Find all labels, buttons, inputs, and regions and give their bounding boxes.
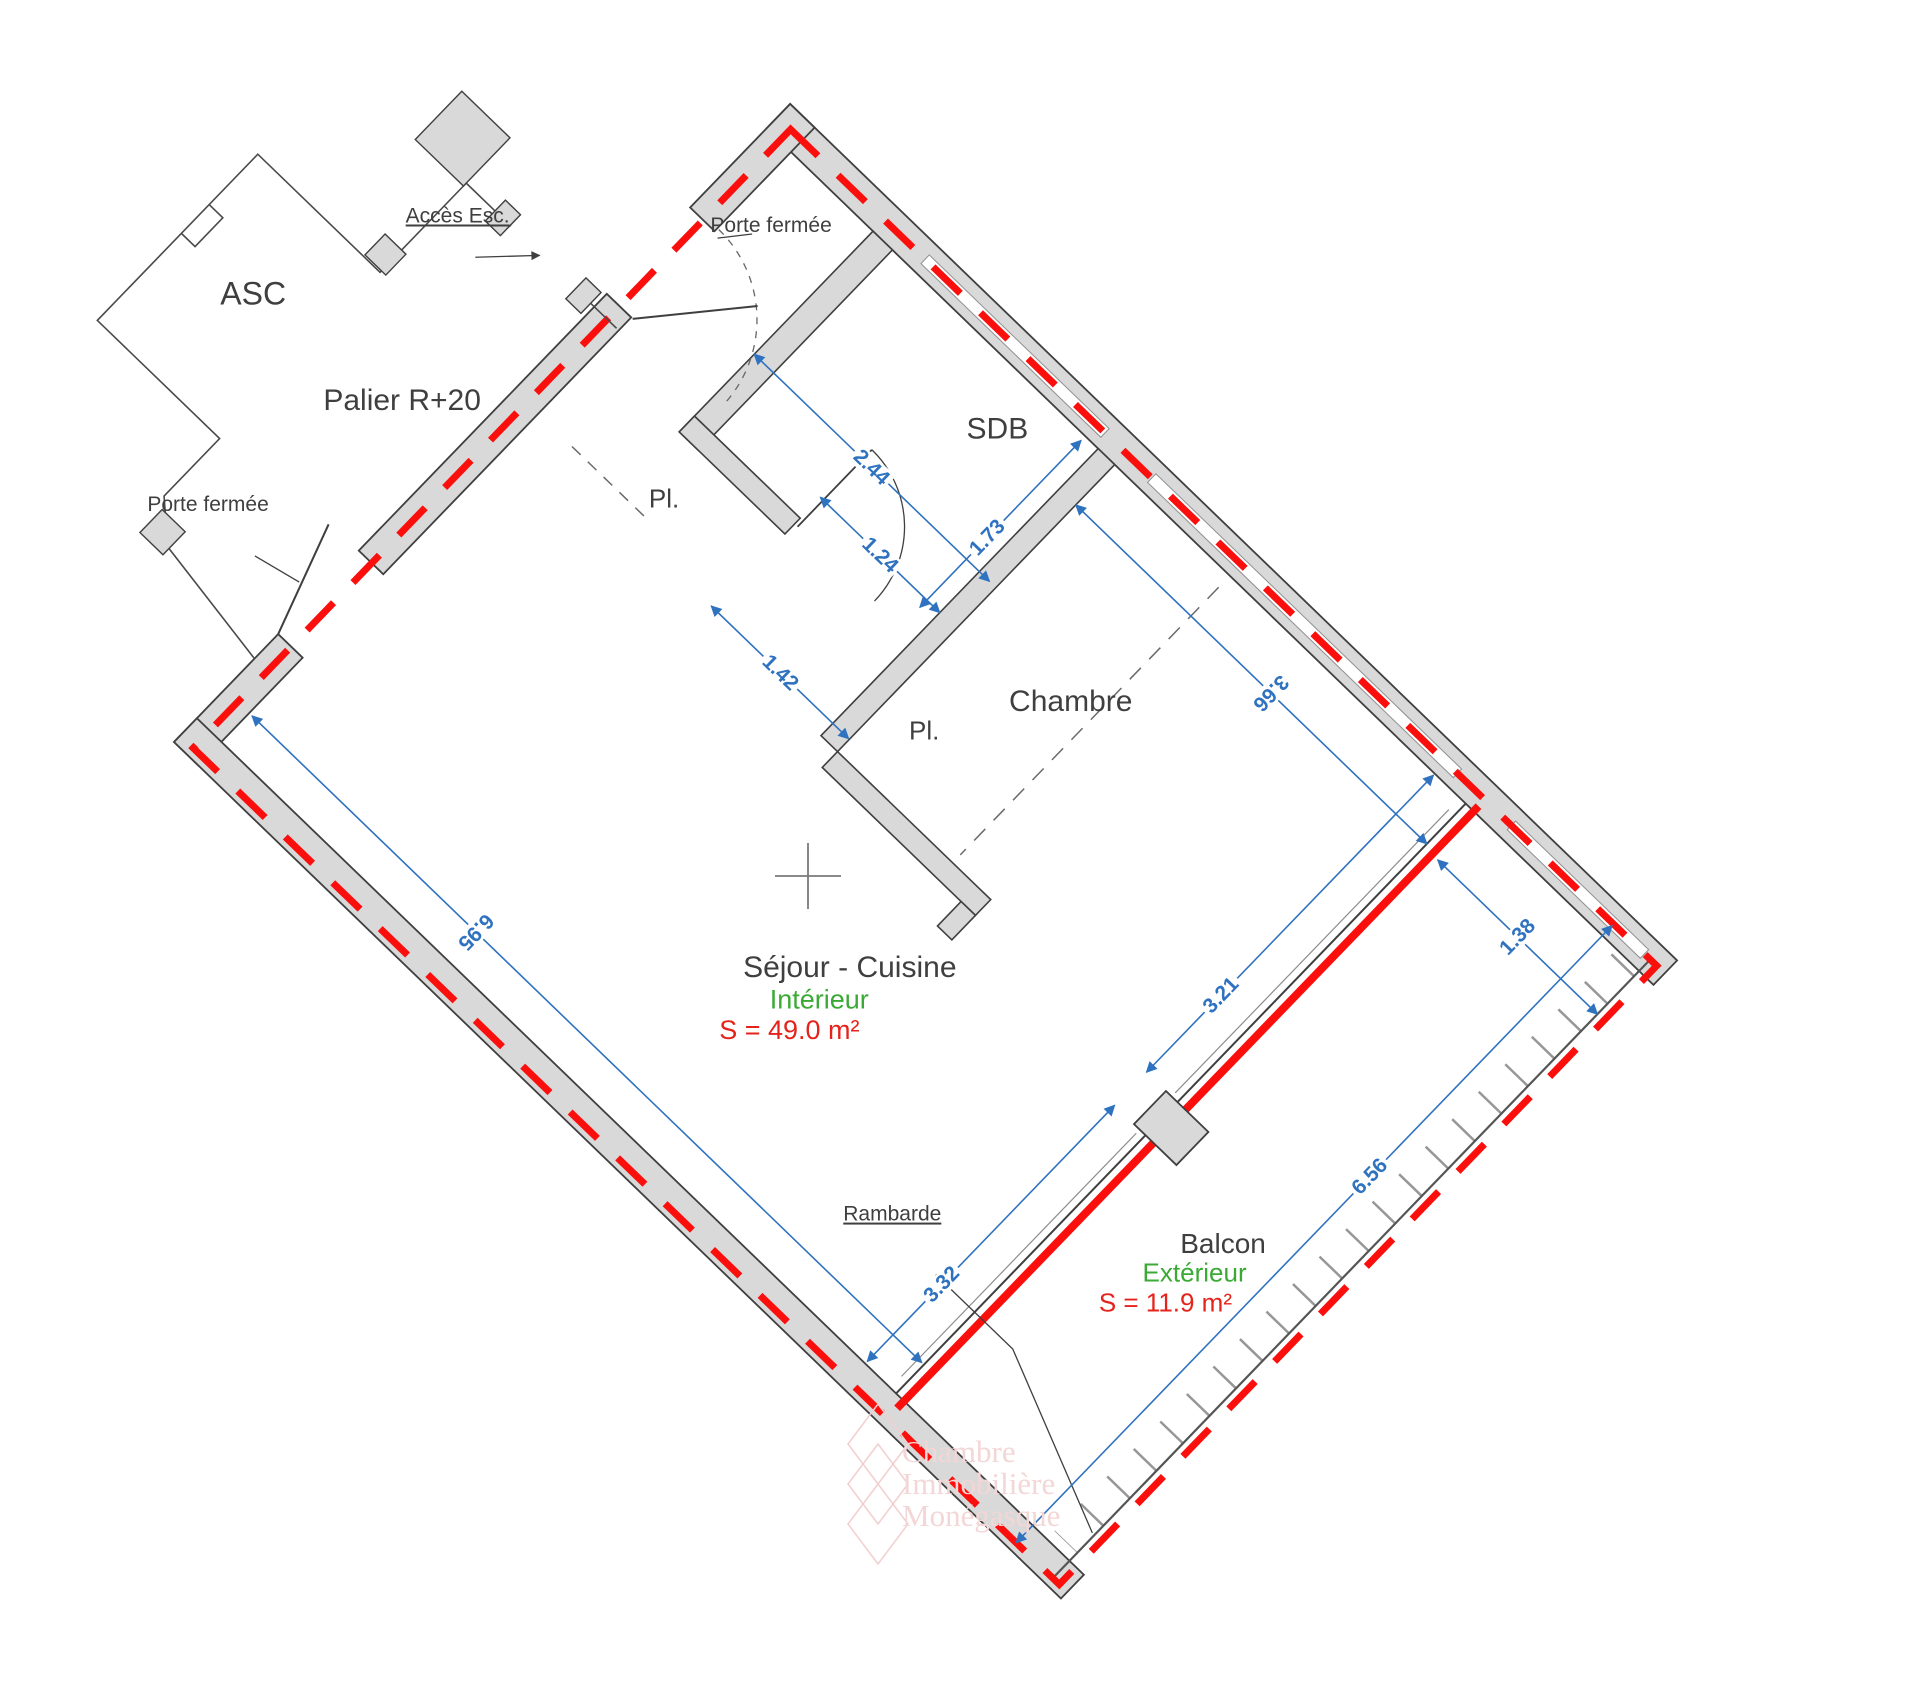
room-label-pl-chambre: Pl. bbox=[909, 717, 939, 744]
railing-hatch bbox=[1066, 964, 1624, 1542]
leader-lines bbox=[136, 107, 1578, 1533]
closet-chambre-dash bbox=[960, 587, 1218, 855]
rambarde-label: Rambarde bbox=[843, 1204, 941, 1226]
closet-hall-dash bbox=[572, 446, 649, 520]
palier-door-leaf bbox=[249, 524, 357, 634]
surface-exterieur-label: S = 11.9 m² bbox=[1099, 1290, 1232, 1317]
wall-chambre-bottom bbox=[822, 752, 991, 916]
floor-plan-drawing bbox=[0, 0, 1753, 1682]
leader-acces-esc bbox=[475, 224, 539, 288]
room-label-sejour: Séjour - Cuisine bbox=[743, 952, 956, 983]
interieur-label: Intérieur bbox=[770, 985, 869, 1013]
dim-line-balcon-length bbox=[1016, 926, 1612, 1543]
palier-label: Palier R+20 bbox=[323, 385, 481, 417]
wall-nw-seg1 bbox=[690, 104, 814, 231]
palier-asc-wall bbox=[4, 65, 593, 658]
palier-outline bbox=[4, 65, 616, 680]
porte-fermee-top-label: Porte fermée bbox=[710, 215, 831, 237]
porte-fermee-left-label: Porte fermée bbox=[147, 494, 268, 516]
facade-glazing-upper bbox=[1175, 810, 1449, 1093]
exterieur-label: Extérieur bbox=[1143, 1259, 1247, 1286]
leader-porte-left bbox=[255, 547, 299, 590]
facade-glazing-lower bbox=[901, 1133, 1136, 1376]
balcony-railing bbox=[1041, 948, 1650, 1578]
surface-interieur-label: S = 49.0 m² bbox=[719, 1016, 859, 1044]
acces-esc-label: Accès Esc. bbox=[406, 205, 510, 227]
floor-plan: Accès Esc. Porte fermée Porte fermée ASC… bbox=[0, 0, 1753, 1682]
wall-sw bbox=[174, 718, 1084, 1598]
dim-line-facade-lower bbox=[867, 1105, 1114, 1361]
floor-plan-page: Accès Esc. Porte fermée Porte fermée ASC… bbox=[0, 0, 1920, 1684]
column-small bbox=[365, 234, 406, 275]
column-large bbox=[415, 91, 510, 186]
room-label-pl-hall: Pl. bbox=[649, 486, 679, 513]
wall-sdb-left bbox=[679, 231, 892, 450]
room-label-chambre: Chambre bbox=[1009, 686, 1132, 718]
entry-door-arc bbox=[633, 230, 809, 406]
dim-line-facade-upper bbox=[1147, 775, 1434, 1072]
asc-label: ASC bbox=[220, 278, 286, 312]
room-label-sdb: SDB bbox=[967, 413, 1029, 445]
wall-sdb-bottom bbox=[679, 416, 800, 534]
room-label-balcon: Balcon bbox=[1180, 1229, 1266, 1258]
closet-fronts bbox=[555, 196, 1218, 855]
column-wedge bbox=[140, 510, 185, 555]
